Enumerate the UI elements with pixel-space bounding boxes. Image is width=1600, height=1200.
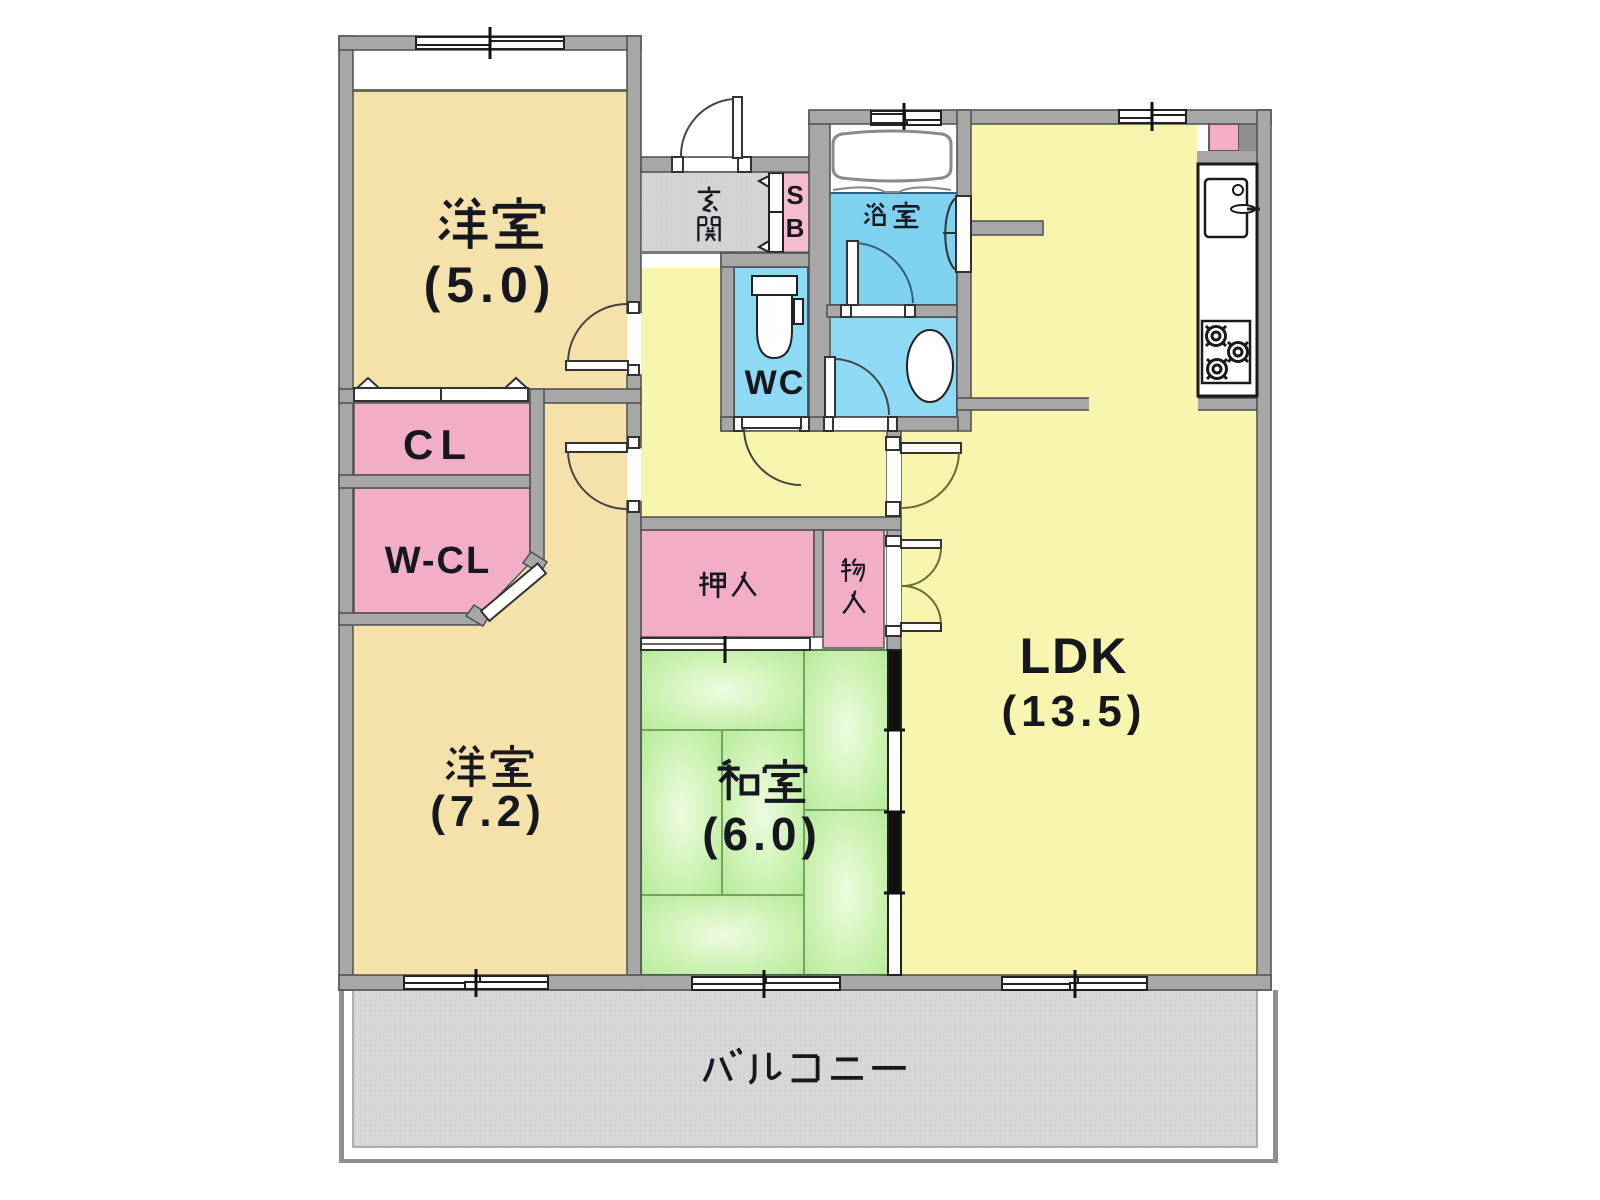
svg-text:W-CL: W-CL (385, 540, 491, 582)
svg-text:(6.0): (6.0) (702, 808, 822, 860)
svg-text:WC: WC (745, 364, 806, 402)
svg-text:B: B (786, 213, 805, 243)
svg-text:(7.2): (7.2) (430, 787, 545, 836)
svg-text:LDK: LDK (1020, 628, 1129, 684)
svg-text:CL: CL (403, 421, 473, 468)
svg-text:(13.5): (13.5) (1002, 687, 1147, 736)
svg-text:S: S (786, 180, 803, 210)
svg-text:(5.0): (5.0) (424, 257, 557, 313)
